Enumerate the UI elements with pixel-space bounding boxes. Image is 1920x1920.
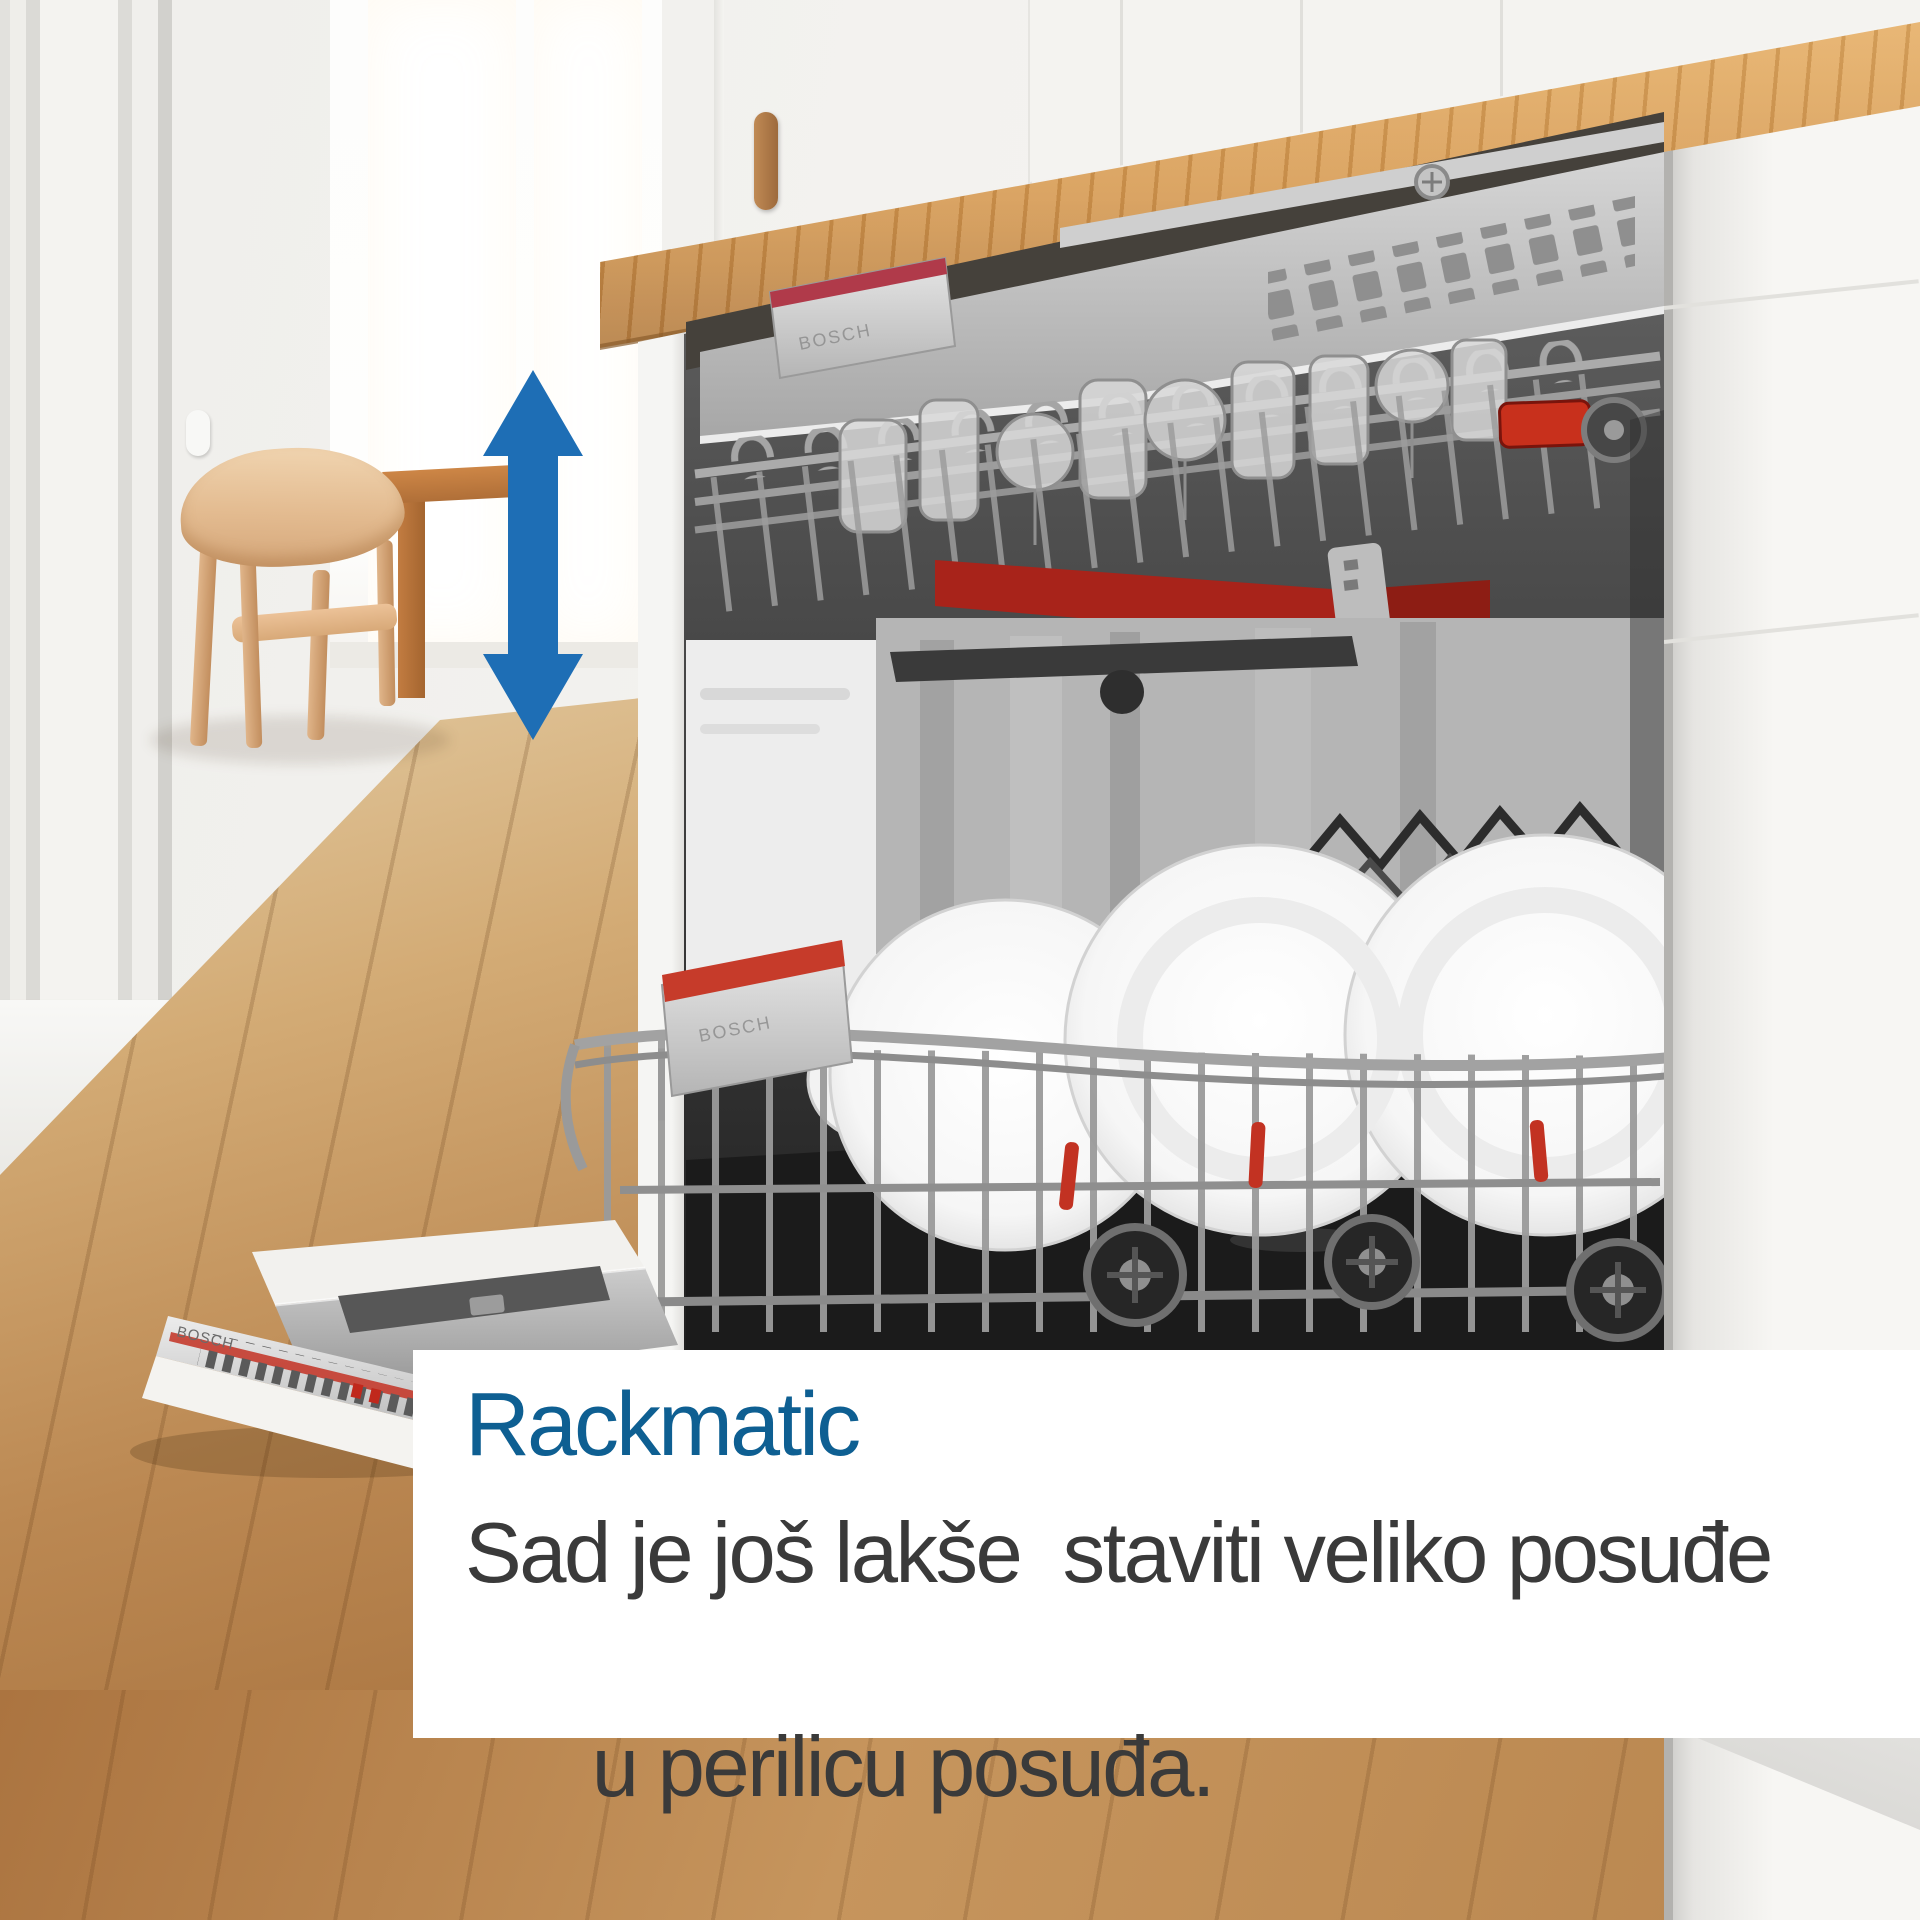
table-leg xyxy=(398,498,425,698)
feature-description: Sad je još lakše staviti veliko posuđe u… xyxy=(465,1500,1771,1920)
product-feature-image: BOSCH xyxy=(0,0,1920,1920)
vertical-double-arrow-icon xyxy=(460,350,620,770)
rack-wheel-hub xyxy=(1604,420,1624,440)
spray-arm-hub xyxy=(1100,670,1144,714)
feature-title: Rackmatic xyxy=(465,1374,858,1477)
feature-description-line2: u perilicu posuđa. xyxy=(592,1720,1213,1815)
feature-description-line1: Sad je još lakše staviti veliko posuđe xyxy=(465,1506,1771,1601)
rack-red-clip xyxy=(1499,400,1590,447)
window-handle xyxy=(186,410,210,456)
bracket-slot xyxy=(1343,579,1358,591)
feature-text-box: Rackmatic Sad je još lakše staviti velik… xyxy=(413,1350,1920,1738)
bracket-slot xyxy=(1343,559,1358,571)
drawer-seam xyxy=(1664,613,1919,644)
drawer-seam xyxy=(1664,279,1919,310)
door-emblem xyxy=(469,1294,505,1316)
